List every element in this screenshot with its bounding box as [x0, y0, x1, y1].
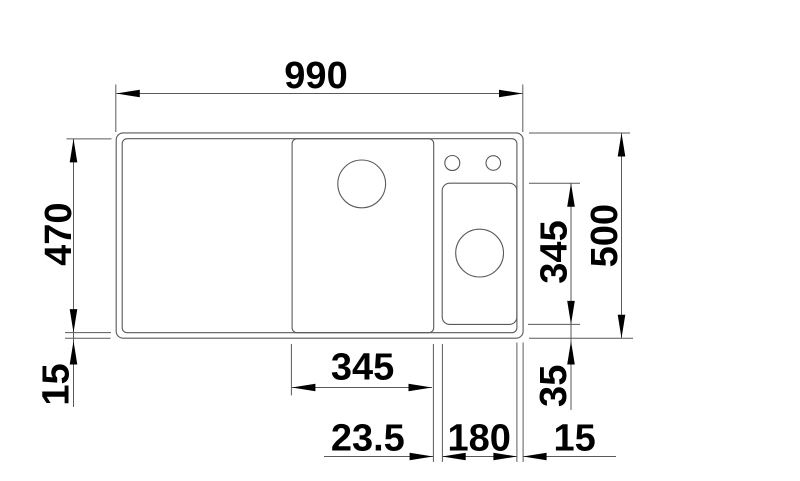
- svg-text:35: 35: [533, 365, 575, 407]
- svg-text:470: 470: [38, 202, 80, 265]
- svg-text:15: 15: [36, 363, 78, 405]
- svg-text:345: 345: [533, 220, 575, 283]
- svg-text:180: 180: [447, 418, 510, 460]
- svg-text:990: 990: [284, 55, 347, 97]
- svg-text:23.5: 23.5: [331, 418, 405, 460]
- svg-text:15: 15: [554, 418, 596, 460]
- svg-text:345: 345: [331, 347, 394, 389]
- svg-text:500: 500: [584, 204, 626, 267]
